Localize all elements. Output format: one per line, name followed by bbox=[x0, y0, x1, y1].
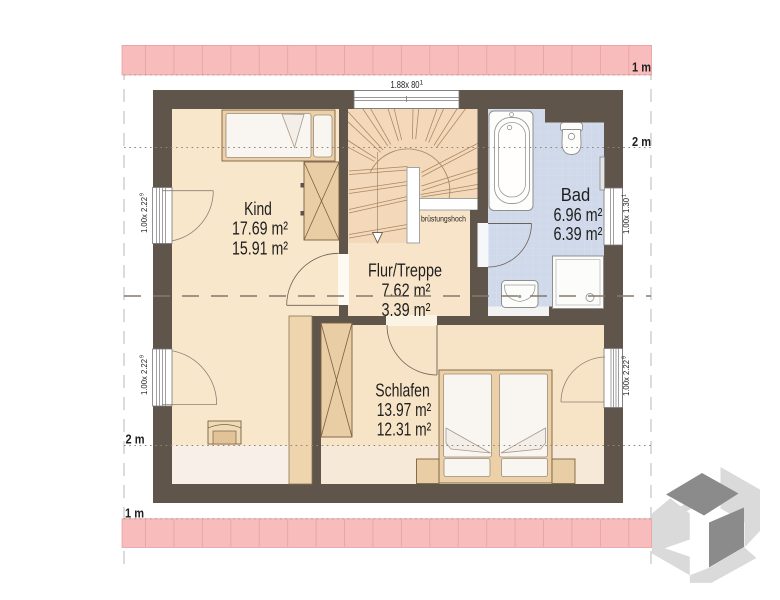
svg-text:15.91 m²: 15.91 m² bbox=[232, 238, 288, 259]
svg-text:3.39 m²: 3.39 m² bbox=[382, 299, 431, 320]
svg-text:2 m: 2 m bbox=[126, 432, 145, 447]
svg-text:6.96 m²: 6.96 m² bbox=[554, 204, 603, 225]
svg-text:1 m: 1 m bbox=[632, 60, 651, 75]
svg-text:6.39 m²: 6.39 m² bbox=[554, 223, 603, 244]
svg-text:1.00x 1.30: 1.00x 1.30 bbox=[621, 198, 631, 234]
svg-text:12.31 m²: 12.31 m² bbox=[377, 419, 432, 440]
svg-text:1.00x 2.22: 1.00x 2.22 bbox=[139, 197, 149, 233]
svg-text:1.88x 80: 1.88x 80 bbox=[391, 80, 420, 91]
svg-text:17.69 m²: 17.69 m² bbox=[232, 218, 288, 239]
svg-text:9: 9 bbox=[140, 355, 146, 358]
svg-text:9: 9 bbox=[622, 356, 628, 359]
svg-text:Schlafen: Schlafen bbox=[375, 380, 430, 401]
svg-text:1.00x 2.22: 1.00x 2.22 bbox=[621, 360, 631, 396]
svg-text:13.97 m²: 13.97 m² bbox=[377, 399, 432, 420]
svg-text:brüstungshoch: brüstungshoch bbox=[421, 215, 466, 224]
svg-text:1.00x 2.22: 1.00x 2.22 bbox=[139, 359, 149, 395]
svg-text:Flur/Treppe: Flur/Treppe bbox=[368, 259, 442, 280]
svg-text:Kind: Kind bbox=[244, 198, 272, 219]
svg-text:1: 1 bbox=[420, 80, 424, 87]
svg-text:1: 1 bbox=[622, 194, 628, 197]
svg-text:7.62 m²: 7.62 m² bbox=[382, 280, 431, 301]
svg-text:9: 9 bbox=[140, 193, 146, 196]
svg-text:Bad: Bad bbox=[561, 184, 591, 205]
svg-text:2 m: 2 m bbox=[632, 134, 651, 149]
svg-text:1 m: 1 m bbox=[125, 506, 144, 521]
